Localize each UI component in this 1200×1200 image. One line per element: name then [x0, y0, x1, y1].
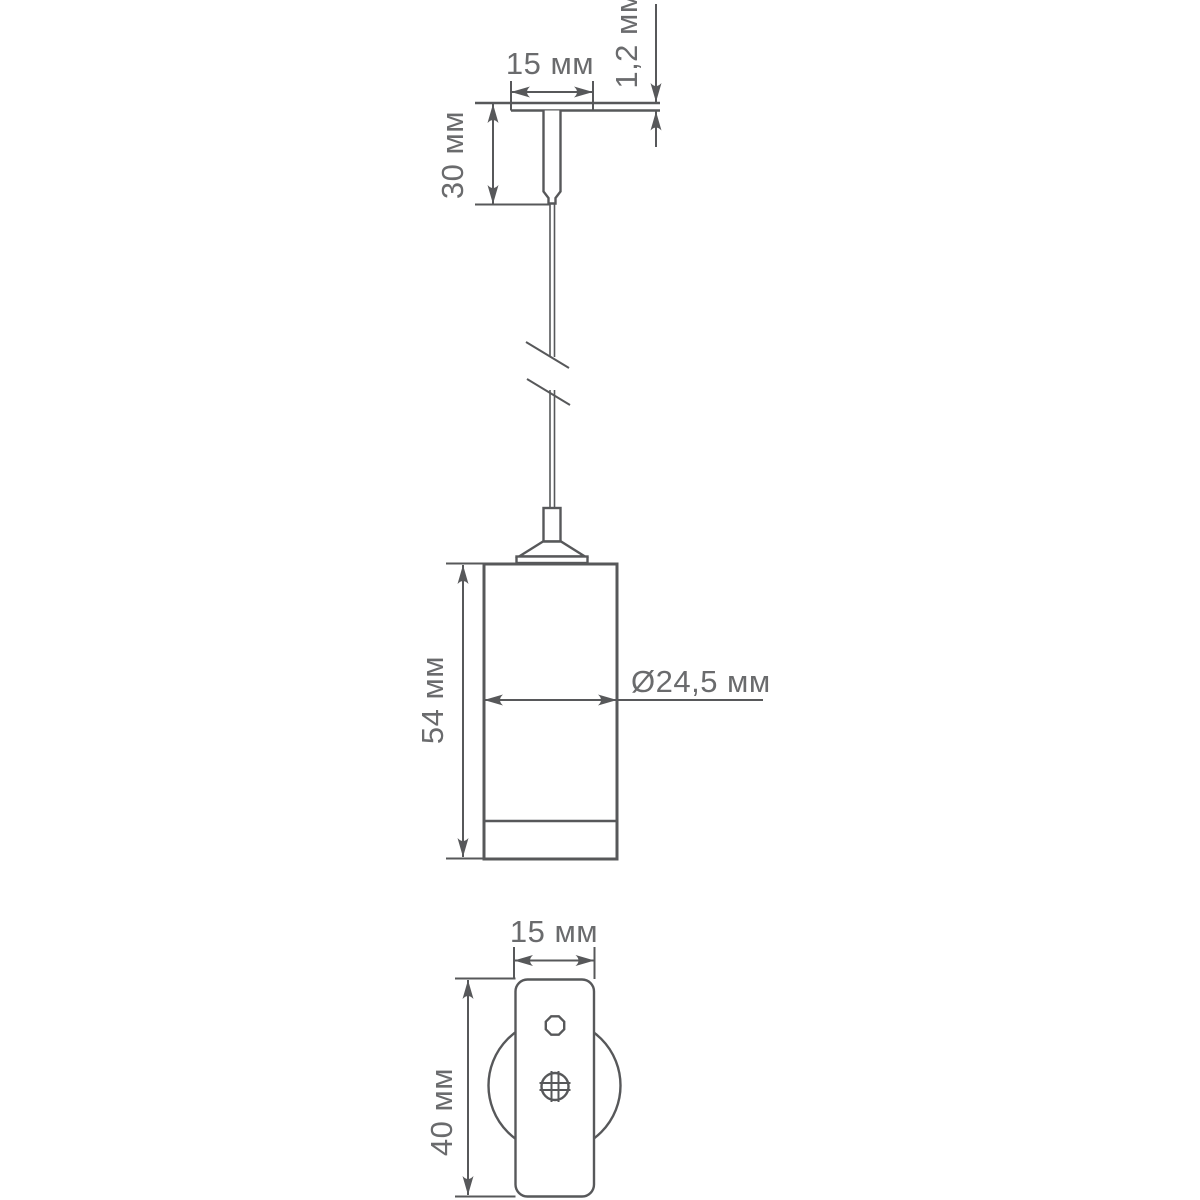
- cable-holder-barrel: [544, 508, 561, 542]
- bracket-height-dimension: 40 мм: [424, 979, 516, 1197]
- plate-thickness-label: 1,2 мм: [609, 0, 644, 89]
- cable-break-icon: [526, 342, 570, 405]
- cable-holder: [517, 508, 588, 563]
- body-diameter-label: Ø24,5 мм: [631, 664, 771, 699]
- mount-plate-front-view: 15 мм 40 мм: [424, 914, 621, 1197]
- ceiling-mount-side-view: 15 мм 1,2 мм 30 мм: [435, 0, 662, 563]
- plate-width-dimension: 15 мм: [506, 46, 594, 98]
- cable-holder-cone: [519, 542, 585, 557]
- bracket-height-label: 40 мм: [424, 1068, 459, 1156]
- plate-thickness-dimension: 1,2 мм: [609, 0, 662, 147]
- stem-height-dimension: 30 мм: [435, 104, 550, 205]
- plate-width-label: 15 мм: [506, 46, 594, 81]
- bracket-width-label: 15 мм: [510, 914, 598, 949]
- bracket-width-dimension: 15 мм: [510, 914, 598, 979]
- mount-stem: [544, 111, 561, 204]
- pendant-body-view: 54 мм Ø24,5 мм: [415, 564, 771, 860]
- lamp-body: [484, 564, 617, 859]
- stem-height-label: 30 мм: [435, 111, 470, 199]
- body-height-label: 54 мм: [415, 656, 450, 744]
- technical-drawing-canvas: 15 мм 1,2 мм 30 мм: [0, 0, 1200, 1200]
- body-height-dimension: 54 мм: [415, 564, 484, 859]
- pendant-light-dimension-drawing: 15 мм 1,2 мм 30 мм: [0, 0, 1200, 1200]
- suspension-cable-lower: [550, 390, 555, 508]
- suspension-cable-upper: [550, 204, 555, 357]
- cable-holder-base: [517, 557, 588, 564]
